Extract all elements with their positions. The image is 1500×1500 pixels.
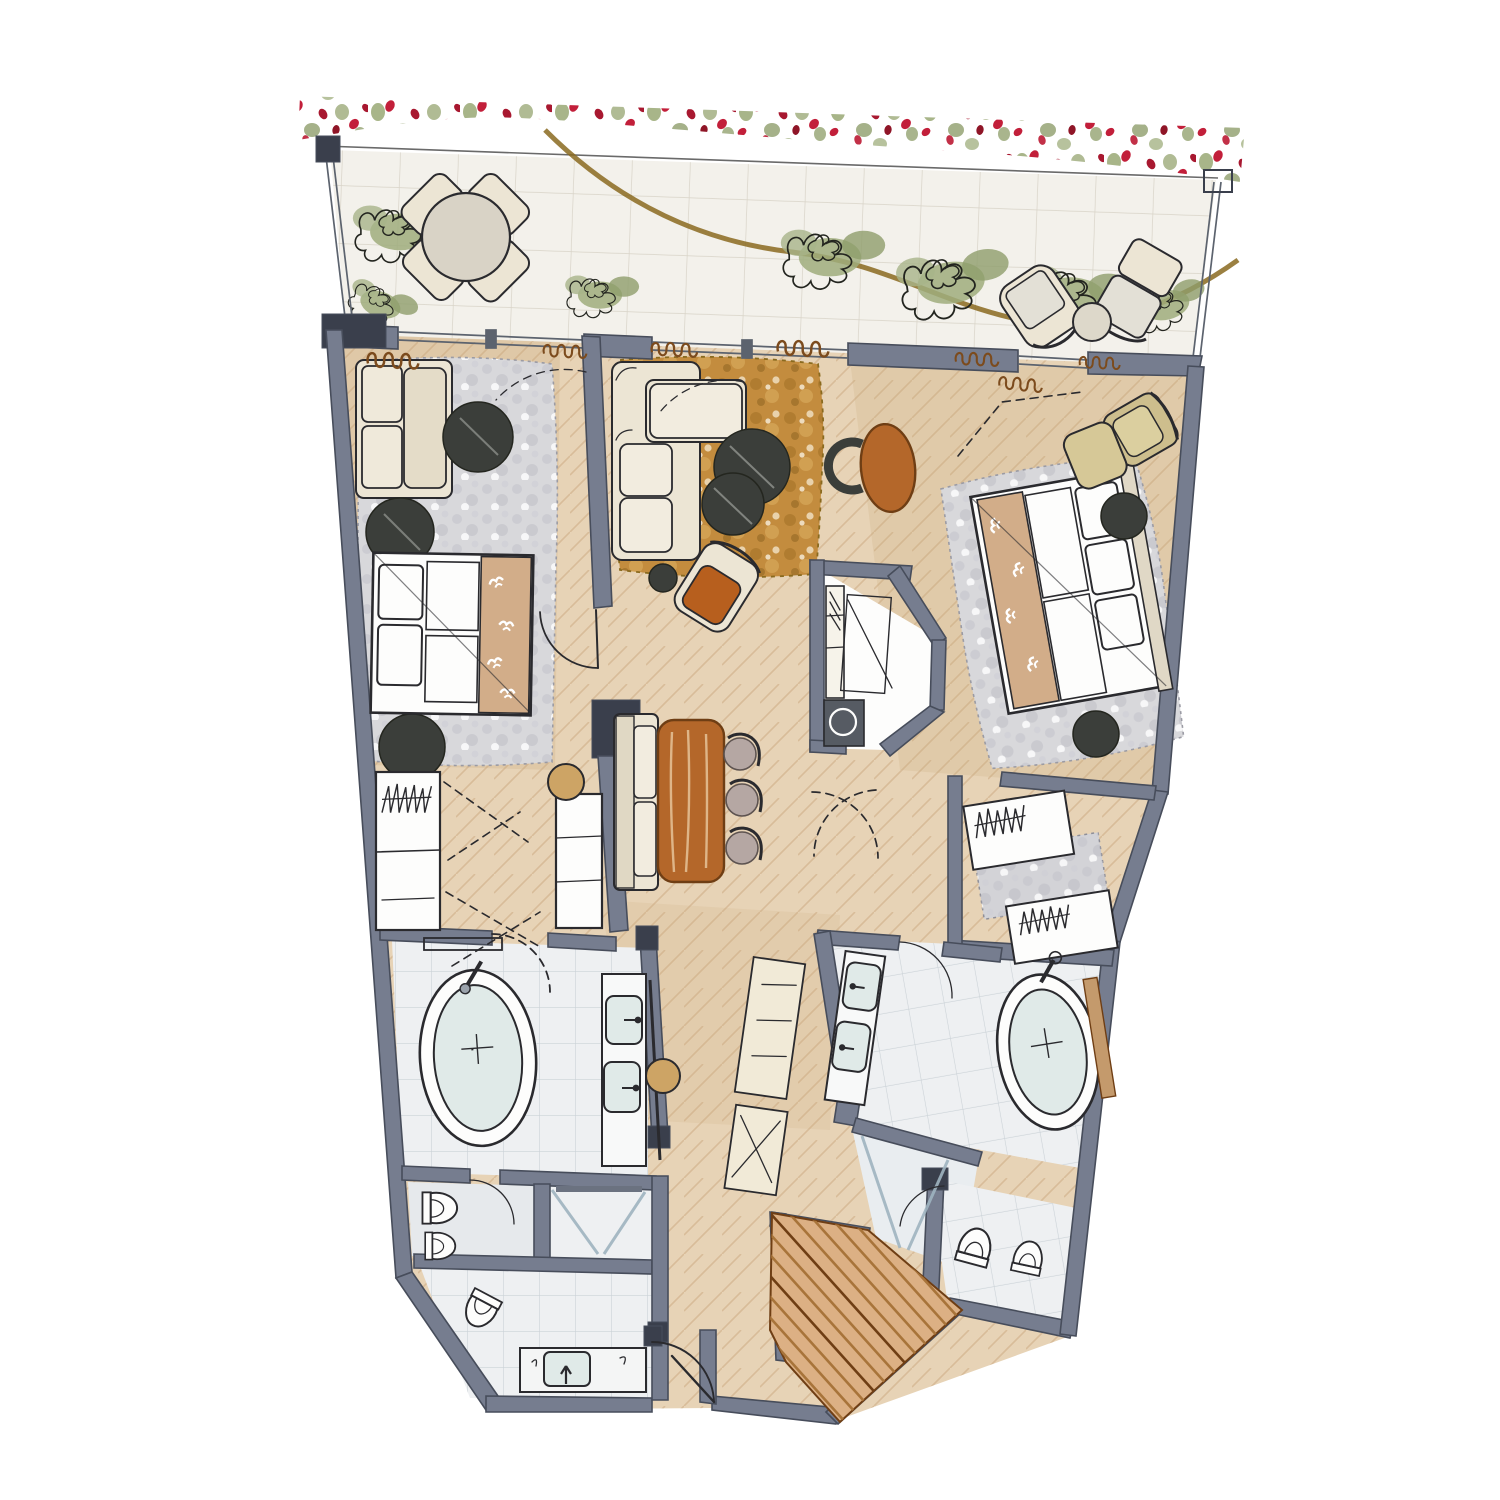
- sink: [831, 1021, 871, 1073]
- pillow: [1094, 594, 1144, 651]
- floor-plan-canvas: [0, 0, 1500, 1500]
- side-table: [649, 564, 677, 592]
- floor-plan-sketch: [0, 0, 1500, 1500]
- toilet: [422, 1192, 457, 1223]
- pillow: [1085, 539, 1135, 596]
- washbasin-counter: [520, 1348, 646, 1392]
- round-side-table: [379, 714, 445, 780]
- terrace: [298, 96, 1245, 368]
- bed: [371, 553, 534, 716]
- terrace-round-table: [422, 193, 510, 281]
- pillow: [378, 565, 423, 620]
- pillow: [377, 625, 422, 686]
- dining-chairs: [724, 734, 761, 864]
- sofa: [356, 360, 452, 498]
- stool: [646, 1059, 680, 1093]
- sink: [842, 961, 882, 1011]
- wardrobe: [556, 794, 602, 928]
- coffee-table: [702, 473, 764, 535]
- bench: [614, 714, 658, 890]
- round-side-table: [443, 402, 513, 472]
- dining: [614, 714, 761, 890]
- nightstand: [1073, 711, 1119, 757]
- dining-table: [658, 720, 724, 882]
- lounge-side-table: [1073, 303, 1111, 341]
- wardrobe: [376, 772, 440, 930]
- nightstand: [1101, 493, 1147, 539]
- stool: [548, 764, 584, 800]
